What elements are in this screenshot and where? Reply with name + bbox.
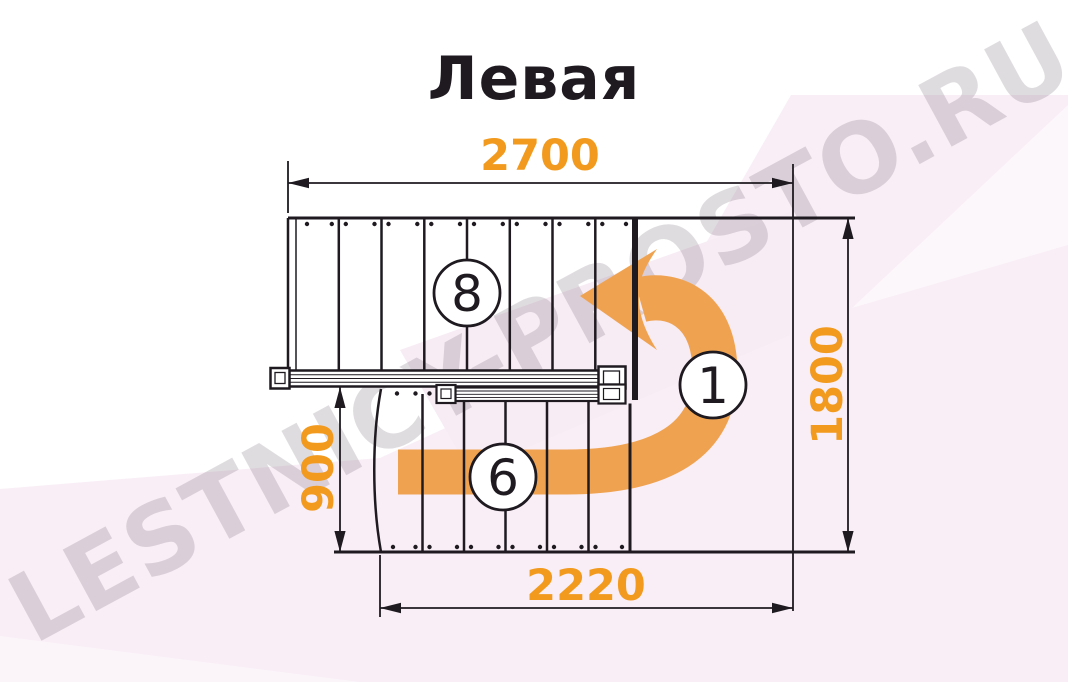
dimension-bottom: 2220 [380, 555, 793, 617]
dim-arrow-down [842, 531, 853, 552]
landing-bars [271, 367, 626, 404]
dimension-top-label: 2700 [480, 131, 600, 181]
dim-arrow-up [842, 218, 853, 239]
marker-lower-flight-steps: 6 [487, 449, 519, 507]
dimension-left-label: 900 [294, 423, 344, 513]
dim-arrow-right [772, 178, 793, 188]
dim-arrow-down [334, 531, 345, 552]
dimension-left: 900 [294, 387, 346, 552]
dimension-right-label: 1800 [803, 325, 853, 445]
page-title: Левая [0, 44, 1068, 114]
dim-arrow-left [380, 603, 401, 613]
lower-flight-break-curve [374, 389, 381, 552]
marker-upper-flight-steps: 8 [451, 265, 483, 323]
dim-arrow-left [288, 178, 309, 188]
marker-turn-number: 1 [697, 357, 729, 415]
stair-plan-diagram: LESTNICY-PROSTO.RU [0, 0, 1068, 682]
dim-arrow-up [334, 387, 345, 408]
dimension-bottom-label: 2220 [526, 561, 646, 611]
dimension-right: 1800 [803, 218, 854, 552]
dimension-top: 2700 [288, 131, 793, 213]
dim-arrow-right [772, 603, 793, 613]
